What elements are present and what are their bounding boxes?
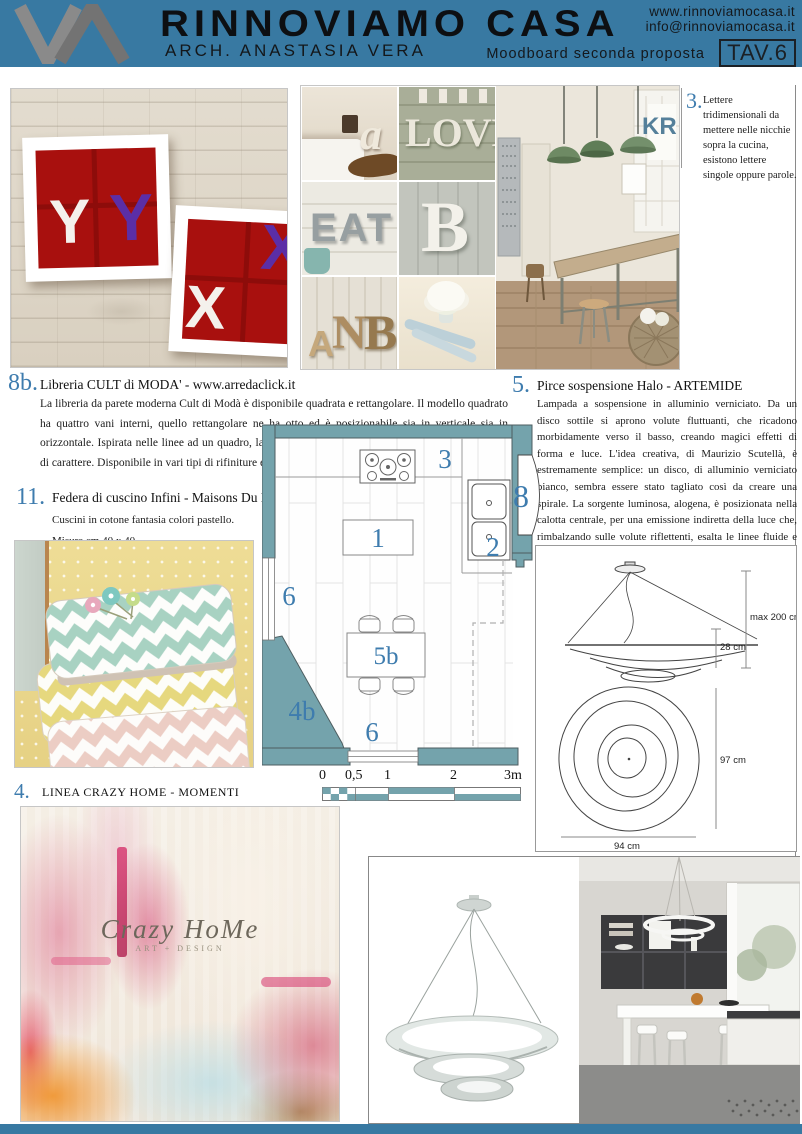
plan-label-6-left: 6 <box>282 581 296 611</box>
collage-cell-bedroom: a <box>301 86 398 181</box>
plan-label-3: 3 <box>438 444 452 474</box>
pirce-product-photo <box>369 857 579 1123</box>
paint-stroke <box>51 957 111 965</box>
shelf-cube-1: Y Y <box>22 134 172 282</box>
plan-label-8: 8 <box>513 478 529 514</box>
plan-hob <box>360 450 415 483</box>
pillows-stack <box>15 541 254 768</box>
paint-stroke <box>261 977 331 987</box>
item11-number: 11. <box>16 484 45 511</box>
item3-number: 3. <box>686 88 703 114</box>
shelf-cube-2: X X <box>168 205 288 359</box>
contact-block: www.rinnoviamocasa.it info@rinnoviamocas… <box>646 4 795 34</box>
scale-tick-0: 0 <box>319 768 326 784</box>
shelf-cube-2-interior: X X <box>182 219 288 345</box>
scale-bar-graphic <box>322 787 521 801</box>
collage-letter-anb-b: B <box>364 303 397 361</box>
industrial-kitchen-photo: KR <box>496 86 680 370</box>
pillows-photo <box>14 540 254 768</box>
plan-label-5b: 5b <box>374 643 399 670</box>
letter-x-white: X <box>184 277 227 339</box>
item4-number: 4. <box>14 779 30 804</box>
scale-tick-1: 1 <box>384 768 391 784</box>
pirce-technical-drawing: max 200 cm 28 cm 97 cm 94 cm <box>536 546 796 851</box>
plan-label-2: 2 <box>486 532 500 562</box>
letter-x-purple: X <box>259 219 288 281</box>
plan-label-6-bottom: 6 <box>365 717 379 747</box>
dim-diameter-94: 94 cm <box>614 841 640 851</box>
flower-bouquet-shape <box>427 281 465 311</box>
item4-title: LINEA CRAZY HOME - MOMENTI <box>42 785 239 800</box>
pirce-kitchen-photo <box>579 857 800 1123</box>
teal-pot-shape <box>304 248 330 274</box>
item5-number: 5. <box>512 372 530 399</box>
crazy-home-tagline: ART + DESIGN <box>21 944 339 953</box>
website-text: www.rinnoviamocasa.it <box>646 4 795 19</box>
scale-tick-05: 0,5 <box>345 768 363 784</box>
collage-cell-eat: EAT <box>301 181 398 276</box>
architect-name: ARCH. ANASTASIA VERA <box>165 41 426 61</box>
item8b-title: Libreria CULT di MODA' - www.arredaclick… <box>40 377 295 393</box>
collage-letter-anb-n: N <box>332 305 367 360</box>
collage-letter-b: B <box>421 186 469 269</box>
collage-letters-love: LOVE <box>405 109 496 156</box>
scale-bar: 0 0,5 1 2 3m <box>322 768 522 804</box>
letter-shelves-photo: Y Y X X <box>10 88 288 368</box>
pirce-spec-box: max 200 cm 28 cm 97 cm 94 cm <box>535 545 797 852</box>
plan-label-4b: 4b <box>289 696 316 726</box>
collage-letters-kr: KR <box>642 113 677 140</box>
collage-cell-b: B <box>398 181 496 276</box>
letter-y-purple: Y <box>108 184 154 251</box>
dim-diameter-97: 97 cm <box>720 755 746 766</box>
footer-bar <box>0 1124 802 1134</box>
item8b-number: 8b. <box>8 370 38 397</box>
dim-max-height: max 200 cm <box>750 612 796 623</box>
scale-tick-3m: 3m <box>504 768 522 784</box>
email-text: info@rinnoviamocasa.it <box>646 19 795 34</box>
note-divider-rule <box>681 88 682 168</box>
collage-letter-a: a <box>360 109 382 160</box>
collage-cell-flowers <box>398 276 496 370</box>
plan-label-1: 1 <box>371 523 385 553</box>
kitchen-floor-plan: 3 1 2 8 6 5b 4b 6 <box>262 423 562 768</box>
collage-letters-eat: EAT <box>310 206 393 251</box>
va-logo-icon <box>10 4 160 64</box>
collage-cell-anb: A N B <box>301 276 398 370</box>
collage-letter-anb-a: A <box>308 323 334 365</box>
item5-title: Pirce sospensione Halo - ARTEMIDE <box>537 378 742 394</box>
letters-collage-photo: a LOVE EAT B A N B <box>300 85 680 370</box>
pirce-photos-panel <box>368 856 800 1124</box>
crazy-home-logo: Crazy HoMe <box>21 914 339 945</box>
tav-number-badge: TAV.6 <box>719 39 796 67</box>
ribbons-shape <box>407 89 487 103</box>
dim-body-height: 28 cm <box>720 642 746 653</box>
letter-y-white: Y <box>49 191 92 254</box>
shelf-cube-1-interior: Y Y <box>35 147 158 268</box>
board-label: Moodboard seconda proposta <box>486 46 705 62</box>
item3-text: Lettere tridimensionali da mettere nelle… <box>703 93 798 183</box>
mini-chair-shape <box>342 115 358 133</box>
scale-tick-2: 2 <box>450 768 457 784</box>
header: RINNOVIAMO CASA ARCH. ANASTASIA VERA www… <box>0 0 802 67</box>
dark-shelves-shape <box>601 915 727 989</box>
collage-cell-love: LOVE <box>398 86 496 181</box>
crazy-home-artwork: Crazy HoMe ART + DESIGN <box>20 806 340 1122</box>
studio-title: RINNOVIAMO CASA <box>160 4 619 45</box>
moodboard-page: RINNOVIAMO CASA ARCH. ANASTASIA VERA www… <box>0 0 802 1134</box>
